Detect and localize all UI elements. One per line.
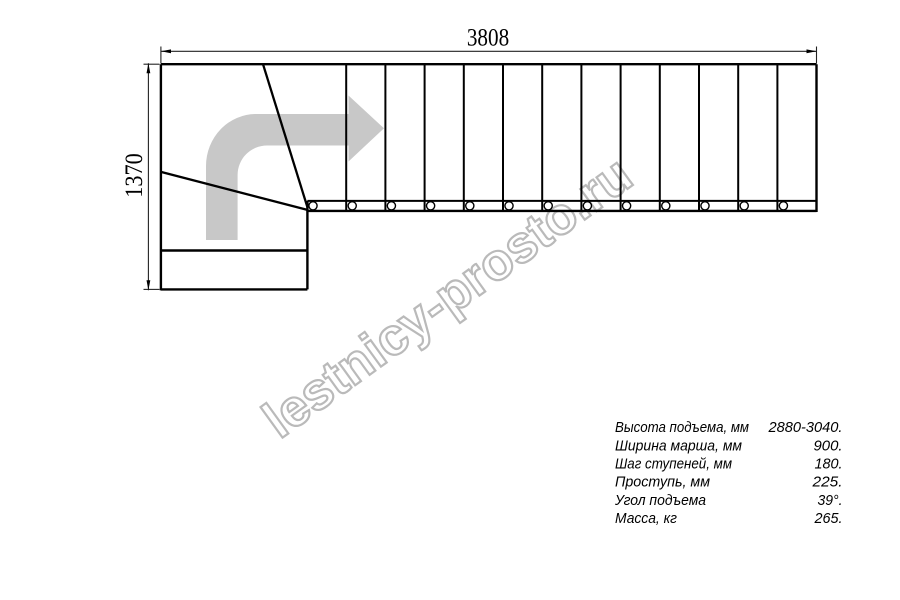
svg-text:Шаг ступеней, мм: Шаг ступеней, мм — [615, 456, 732, 473]
svg-text:Масса, кг: Масса, кг — [615, 510, 678, 527]
svg-text:39°.: 39°. — [818, 492, 843, 509]
svg-text:3808: 3808 — [467, 24, 509, 51]
svg-text:2880-3040.: 2880-3040. — [768, 419, 843, 436]
svg-text:265.: 265. — [814, 510, 843, 527]
svg-text:1370: 1370 — [121, 153, 148, 198]
svg-text:180.: 180. — [815, 456, 843, 473]
svg-text:Ширина марша, мм: Ширина марша, мм — [615, 437, 742, 454]
svg-text:Высота подъема, мм: Высота подъема, мм — [615, 419, 749, 436]
svg-text:225.: 225. — [811, 474, 842, 491]
svg-text:Проступь, мм: Проступь, мм — [615, 474, 710, 491]
svg-text:900.: 900. — [814, 437, 843, 454]
svg-text:Угол подъема: Угол подъема — [614, 492, 706, 509]
